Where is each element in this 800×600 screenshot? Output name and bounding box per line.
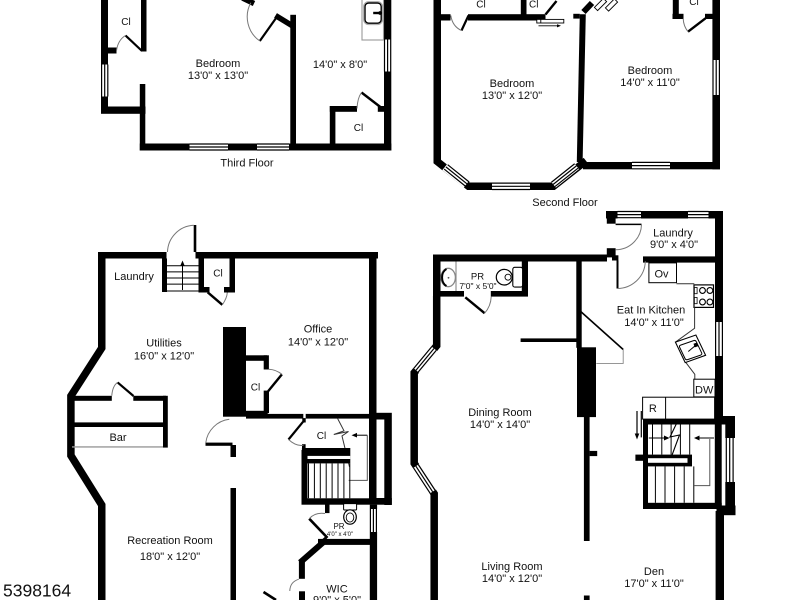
- svg-text:Recreation Room: Recreation Room: [127, 535, 213, 547]
- svg-text:4'0" x 4'0": 4'0" x 4'0": [327, 532, 353, 538]
- svg-text:Living Room: Living Room: [481, 561, 542, 573]
- svg-text:Bedroom: Bedroom: [490, 78, 535, 90]
- svg-text:Den: Den: [644, 566, 664, 578]
- svg-text:17'0" x 11'0": 17'0" x 11'0": [624, 578, 684, 590]
- svg-text:Bar: Bar: [109, 432, 126, 444]
- svg-text:Third Floor: Third Floor: [220, 158, 274, 170]
- svg-text:7'0" x 5'0": 7'0" x 5'0": [459, 281, 496, 291]
- svg-text:DW: DW: [695, 385, 714, 397]
- svg-text:14'0" x 12'0": 14'0" x 12'0": [482, 573, 542, 585]
- svg-text:14'0" x 11'0": 14'0" x 11'0": [624, 317, 684, 329]
- svg-text:Office: Office: [304, 324, 333, 336]
- svg-text:Cl: Cl: [354, 123, 363, 134]
- svg-text:18'0" x 12'0": 18'0" x 12'0": [140, 551, 200, 563]
- svg-text:Dining Room: Dining Room: [468, 407, 532, 419]
- svg-text:Cl: Cl: [689, 0, 698, 8]
- svg-text:Eat In Kitchen: Eat In Kitchen: [617, 305, 686, 317]
- svg-text:14'0" x 14'0": 14'0" x 14'0": [470, 419, 530, 431]
- svg-text:Laundry: Laundry: [653, 228, 693, 240]
- svg-text:Second Floor: Second Floor: [532, 197, 598, 209]
- svg-text:Cl: Cl: [529, 0, 538, 11]
- svg-text:PR: PR: [333, 522, 344, 531]
- svg-text:14'0" x 8'0": 14'0" x 8'0": [313, 59, 367, 71]
- svg-text:13'0" x 13'0": 13'0" x 13'0": [188, 70, 248, 82]
- svg-text:14'0" x 11'0": 14'0" x 11'0": [620, 77, 680, 89]
- svg-text:9'0" x 4'0": 9'0" x 4'0": [650, 239, 698, 251]
- svg-text:5398164: 5398164: [3, 581, 71, 600]
- svg-text:Cl: Cl: [213, 269, 222, 280]
- svg-text:13'0" x 12'0": 13'0" x 12'0": [482, 90, 542, 102]
- svg-text:Laundry: Laundry: [114, 271, 154, 283]
- svg-text:Cl: Cl: [476, 0, 485, 11]
- svg-text:Cl: Cl: [251, 383, 260, 394]
- svg-text:16'0" x 12'0": 16'0" x 12'0": [134, 351, 194, 363]
- svg-text:14'0" x 12'0": 14'0" x 12'0": [288, 337, 348, 349]
- svg-text:Bedroom: Bedroom: [196, 58, 241, 70]
- svg-text:Utilities: Utilities: [146, 338, 182, 350]
- svg-text:Cl: Cl: [317, 431, 326, 442]
- svg-text:Ov: Ov: [654, 269, 669, 281]
- svg-text:R: R: [649, 403, 657, 415]
- svg-text:Cl: Cl: [121, 17, 130, 28]
- svg-text:Bedroom: Bedroom: [628, 65, 673, 77]
- svg-text:9'0" x 5'0": 9'0" x 5'0": [313, 595, 361, 600]
